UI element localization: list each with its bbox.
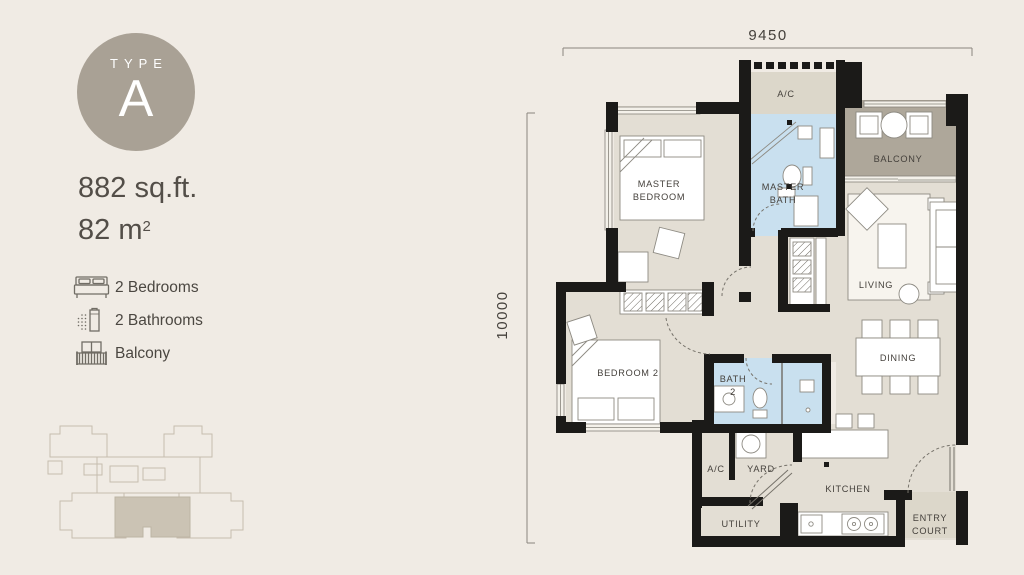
master-bed	[620, 136, 704, 220]
dimension-left: 10000	[494, 113, 535, 543]
label-ac-top: A/C	[777, 89, 794, 99]
floorplan-page: TYPE A 882 sq.ft. 82 m2 2 Bedrooms	[0, 0, 1024, 575]
label-entry-court: ENTRY	[913, 513, 947, 523]
svg-text:BATH: BATH	[770, 195, 797, 205]
label-dining: DINING	[880, 353, 916, 363]
dimension-top: 9450	[563, 27, 972, 56]
label-balcony: BALCONY	[874, 154, 923, 164]
bed2	[572, 340, 660, 424]
mb-bench	[618, 252, 648, 282]
label-bedroom2: BEDROOM 2	[597, 368, 658, 378]
label-bath2: BATH	[720, 374, 747, 384]
svg-text:2: 2	[730, 387, 736, 397]
label-living: LIVING	[859, 280, 893, 290]
mb-ottoman	[653, 227, 685, 259]
label-master-bath: MASTER	[762, 182, 804, 192]
dimension-left-value: 10000	[494, 290, 511, 339]
wardrobe-hall	[790, 238, 826, 308]
svg-text:BEDROOM: BEDROOM	[633, 192, 685, 202]
washer	[736, 430, 766, 458]
label-yard: YARD	[747, 464, 775, 474]
wardrobe-br2	[620, 290, 706, 314]
floorplan-drawing: 9450 10000	[0, 0, 1024, 575]
keyplan-unit-highlight	[115, 497, 190, 537]
label-kitchen: KITCHEN	[825, 484, 870, 494]
svg-text:COURT: COURT	[912, 526, 948, 536]
keyplan	[48, 426, 243, 538]
label-utility: UTILITY	[721, 519, 760, 529]
label-master-bedroom: MASTER	[638, 179, 680, 189]
balcony-furniture	[856, 112, 932, 138]
dimension-top-value: 9450	[748, 27, 787, 44]
label-ac-bottom: A/C	[707, 464, 724, 474]
